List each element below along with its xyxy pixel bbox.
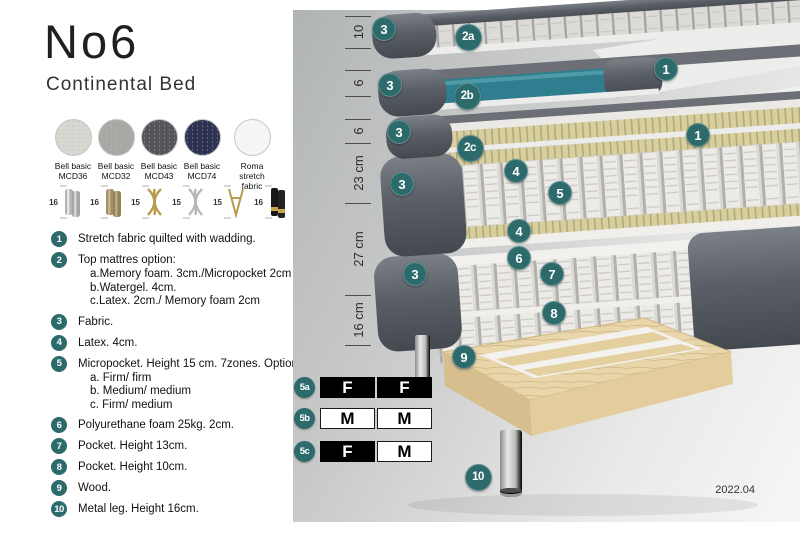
firmness-cells: FM [320,441,432,462]
floor-shadow [408,494,758,516]
firmness-row-badge: 5a [294,377,315,398]
callout-8: 8 [542,301,566,325]
legend-body: Fabric. [78,314,113,330]
callout-6: 6 [507,246,531,270]
product-subtitle: Continental Bed [46,74,196,96]
spec-panel: No6 Continental Bed Bell basicMCD36Bell … [0,0,293,533]
callout-2a: 2a [455,24,482,51]
legend-number-badge: 1 [51,231,67,247]
firmness-row-5a: 5aFF [294,377,432,398]
firmness-cell: F [320,377,375,398]
legend-text: Metal leg. Height 16cm. [78,501,199,517]
legend-number-badge: 8 [51,459,67,475]
legend-sub-option: b.Watergel. 4cm. [90,282,291,296]
product-title: No6 [44,14,139,69]
callout-2b: 2b [454,83,481,110]
legend-sub-option: c. Firm/ medium [90,399,301,413]
leg-height-label: 16 [46,198,58,207]
firmness-cell: F [320,441,375,462]
leg-option: 16 [87,184,126,220]
front-leg [500,430,522,497]
version-label: 2022.04 [715,484,755,496]
legend-sub-option: c.Latex. 2cm./ Memory foam 2cm [90,295,291,309]
fabric-name: Roma [232,161,272,171]
legend-text: Stretch fabric quilted with wadding. [78,231,256,247]
callout-4: 4 [504,159,528,183]
firmness-row-badge: 5b [294,408,315,429]
firmness-row-5c: 5cFM [294,441,432,462]
firmness-row-5b: 5bMM [294,408,432,429]
callout-9: 9 [452,345,476,369]
callout-3: 3 [372,17,396,41]
callout-3: 3 [387,120,411,144]
callout-10: 10 [465,464,492,491]
fabric-swatch: Bell basicMCD43 [139,119,179,192]
legend-text: Pocket. Height 10cm. [78,459,187,475]
fabric-swatch: Bell basicMCD74 [182,119,222,192]
callout-1: 1 [654,57,678,81]
ruler-measurement-label: 16 cm [351,294,367,346]
legend-text: Wood. [78,480,111,496]
firmness-row-badge: 5c [294,441,315,462]
legend-sub-option: a.Memory foam. 3cm./Micropocket 2cm [90,268,291,282]
leg-height-label: 16 [87,198,99,207]
legend-sub-option: b. Medium/ medium [90,385,301,399]
ruler-tick [345,203,371,204]
legend-body: Polyurethane foam 25kg. 2cm. [78,417,234,433]
legend-number-badge: 3 [51,314,67,330]
fabric-swatch-circle [55,119,92,156]
leg-option: 15 [128,184,167,220]
legend-item: 9Wood. [51,480,293,496]
leg-cross-silver-icon [182,184,208,220]
firmness-cells: FF [320,377,432,398]
callout-2c: 2c [457,135,484,162]
firmness-cell: M [320,408,375,429]
legend-body: Top mattres option:a.Memory foam. 3cm./M… [78,252,291,309]
legend-body: Metal leg. Height 16cm. [78,501,199,517]
leg-hairpin-gold-icon [223,184,249,220]
fabric-swatch-label: Bell basicMCD43 [139,161,179,181]
legend-number-badge: 9 [51,480,67,496]
legend-number-badge: 7 [51,438,67,454]
fabric-code: MCD32 [96,171,136,181]
diagram-panel: 106623 cm27 cm16 cm 32a132b32c1345467389… [293,0,800,533]
fabric-swatch: Bell basicMCD32 [96,119,136,192]
ruler-measurement-label: 23 cm [351,147,367,199]
legend-number-badge: 5 [51,356,67,372]
leg-option: 16 [46,184,85,220]
callout-5: 5 [548,181,572,205]
legend-item: 10Metal leg. Height 16cm. [51,501,293,517]
ruler-measurement-label: 6 [351,57,367,109]
fabric-code: MCD74 [182,171,222,181]
firmness-cell: F [377,377,432,398]
legend-body: Pocket. Height 10cm. [78,459,187,475]
fabric-code: MCD36 [53,171,93,181]
legend-text: Polyurethane foam 25kg. 2cm. [78,417,234,433]
leg-option: 15 [169,184,208,220]
legend-text: Fabric. [78,314,113,330]
legend-number-badge: 6 [51,417,67,433]
legend-text: Micropocket. Height 15 cm. 7zones. Optio… [78,356,301,372]
fabric-swatch-row: Bell basicMCD36Bell basicMCD32Bell basic… [53,119,272,192]
legend-item: 7Pocket. Height 13cm. [51,438,293,454]
layer-legend-list: 1Stretch fabric quilted with wadding.2To… [51,231,293,522]
legend-number-badge: 2 [51,252,67,268]
fabric-swatch: Bell basicMCD36 [53,119,93,192]
fabric-swatch-label: Bell basicMCD74 [182,161,222,181]
firmness-cell: M [377,408,432,429]
fabric-name: Bell basic [182,161,222,171]
leg-cylinder-black-gold-icon [264,184,290,220]
firmness-cell: M [377,441,432,462]
ruler-measurement-label: 27 cm [351,223,367,275]
leg-option: 15 [210,184,249,220]
leg-height-label: 15 [169,198,181,207]
leg-height-label: 16 [251,198,263,207]
leg-option: 16 [251,184,290,220]
callout-4: 4 [507,219,531,243]
leg-options-row: 161615151516 [46,184,290,220]
leg-cylinder-bronze-icon [100,184,126,220]
legend-text: Top mattres option: [78,252,291,268]
legend-text: Latex. 4cm. [78,335,137,351]
callout-3: 3 [390,172,414,196]
legend-item: 3Fabric. [51,314,293,330]
fabric-name: Bell basic [139,161,179,171]
legend-item: 2Top mattres option:a.Memory foam. 3cm./… [51,252,293,309]
ruler-measurement-label: 10 [351,6,367,58]
fabric-swatch-circle [184,119,221,156]
legend-item: 8Pocket. Height 10cm. [51,459,293,475]
fabric-swatch-label: Bell basicMCD32 [96,161,136,181]
callout-7: 7 [540,262,564,286]
legend-item: 6Polyurethane foam 25kg. 2cm. [51,417,293,433]
fabric-swatch-circle [98,119,135,156]
callout-3: 3 [403,262,427,286]
leg-height-label: 15 [128,198,140,207]
fabric-name: Bell basic [96,161,136,171]
legend-body: Wood. [78,480,111,496]
legend-item: 1Stretch fabric quilted with wadding. [51,231,293,247]
callout-1: 1 [686,123,710,147]
legend-number-badge: 10 [51,501,67,517]
legend-sub-option: a. Firm/ firm [90,372,301,386]
leg-height-label: 15 [210,198,222,207]
callout-3: 3 [378,73,402,97]
fabric-swatch-circle [234,119,271,156]
leg-cross-gold-icon [141,184,167,220]
fabric-swatch: Romastretch fabric [232,119,272,192]
fabric-swatch-label: Bell basicMCD36 [53,161,93,181]
legend-item: 4Latex. 4cm. [51,335,293,351]
legend-body: Micropocket. Height 15 cm. 7zones. Optio… [78,356,301,413]
legend-body: Stretch fabric quilted with wadding. [78,231,256,247]
fabric-code: MCD43 [139,171,179,181]
legend-body: Pocket. Height 13cm. [78,438,187,454]
legend-text: Pocket. Height 13cm. [78,438,187,454]
legend-body: Latex. 4cm. [78,335,137,351]
firmness-cells: MM [320,408,432,429]
leg-cylinder-silver-icon [59,184,85,220]
fabric-swatch-circle [141,119,178,156]
legend-number-badge: 4 [51,335,67,351]
ruler-tick [345,143,371,144]
fabric-name: Bell basic [53,161,93,171]
legend-item: 5Micropocket. Height 15 cm. 7zones. Opti… [51,356,293,413]
